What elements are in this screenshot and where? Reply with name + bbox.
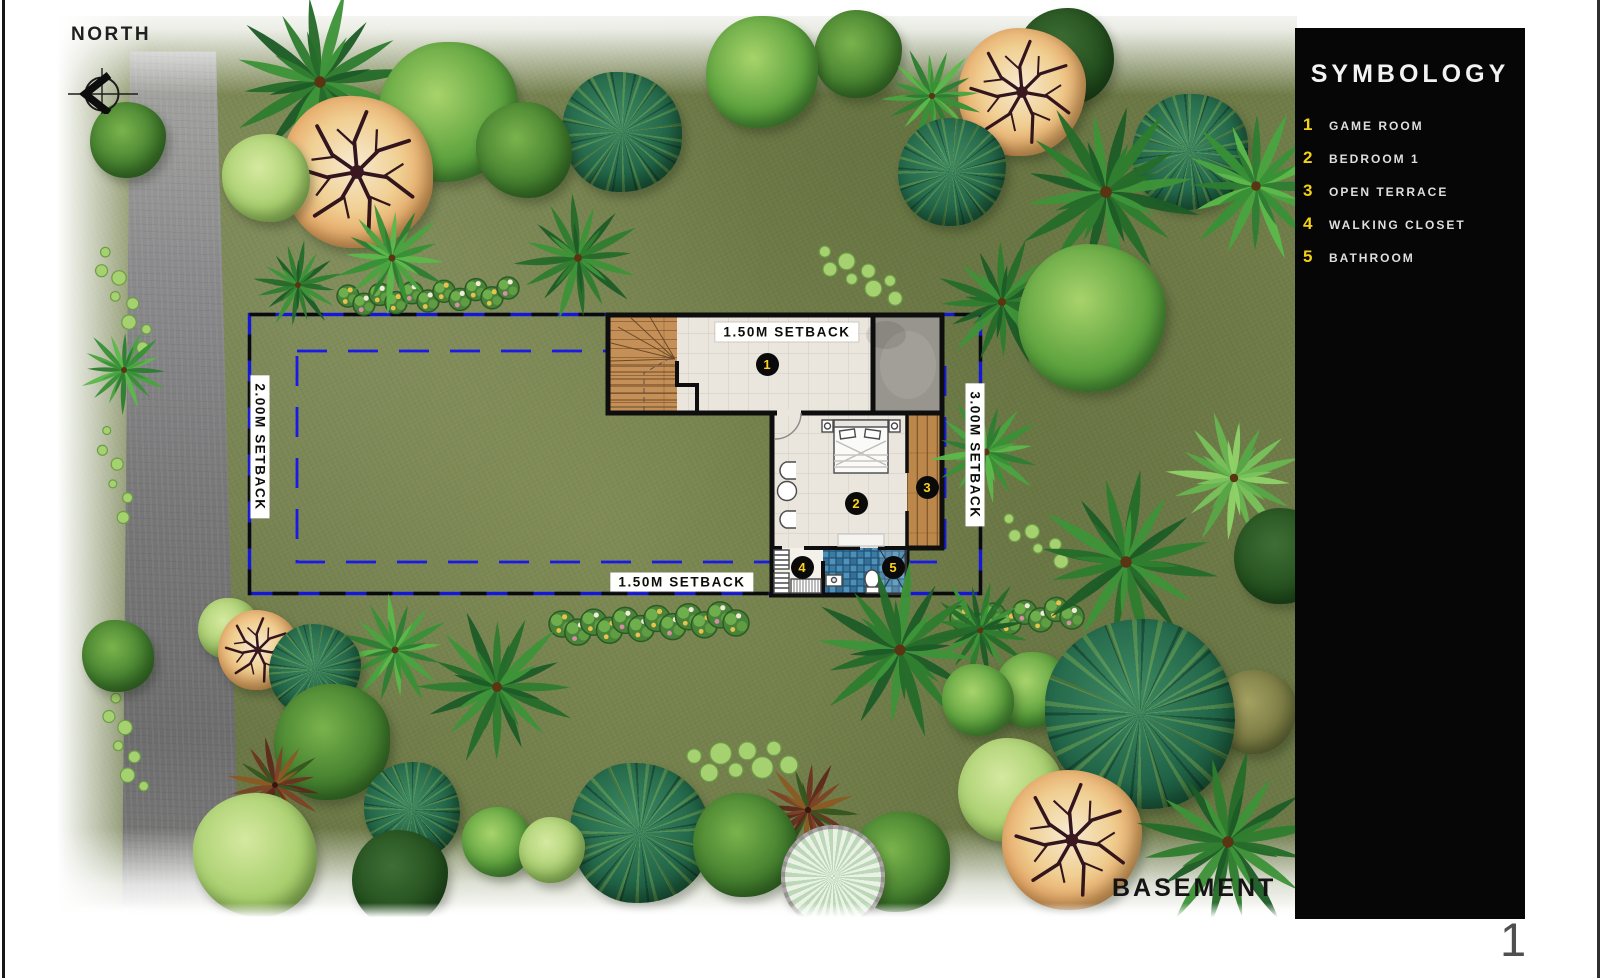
flower-shrub [497, 277, 519, 299]
legend-label: WALKING CLOSET [1329, 218, 1466, 232]
groundcover-dot [738, 742, 756, 760]
groundcover-dot [884, 275, 895, 286]
legend-item: 1GAME ROOM [1303, 115, 1525, 135]
groundcover-dot [846, 273, 857, 284]
groundcover-dot [710, 743, 732, 765]
groundcover-dot [700, 764, 718, 782]
legend-label: GAME ROOM [1329, 119, 1424, 133]
groundcover-dot [103, 710, 115, 722]
groundcover-dot [112, 271, 126, 285]
legend-number: 1 [1303, 115, 1329, 135]
legend-label: BATHROOM [1329, 251, 1415, 265]
groundcover-dot [751, 757, 773, 779]
groundcover-dot [111, 693, 121, 703]
groundcover-dot [110, 292, 120, 302]
legend-item: 4WALKING CLOSET [1303, 214, 1525, 234]
legend-item: 3OPEN TERRACE [1303, 181, 1525, 201]
symbology-panel: SYMBOLOGY 1GAME ROOM2BEDROOM 13OPEN TERR… [1295, 28, 1525, 919]
groundcover-dot [687, 749, 701, 763]
flower-shrub [1060, 605, 1084, 629]
north-label: NORTH [71, 24, 151, 46]
groundcover-dot [838, 253, 855, 270]
groundcover-dot [120, 768, 134, 782]
compass-icon [58, 44, 178, 114]
room-badge-1: 1 [756, 353, 779, 376]
groundcover-dot [111, 458, 123, 470]
legend-label: BEDROOM 1 [1329, 152, 1420, 166]
groundcover-dot [767, 741, 781, 755]
groundcover-dot [888, 291, 902, 305]
room-badge-3: 3 [916, 476, 939, 499]
setback-label-left: 2.00M SETBACK [251, 375, 270, 518]
groundcover-dot [1049, 538, 1061, 550]
setback-label-top: 1.50M SETBACK [715, 323, 858, 342]
groundcover-dot [729, 763, 743, 777]
setback-label-bottom: 1.50M SETBACK [610, 573, 753, 592]
groundcover-dot [97, 445, 107, 455]
legend-number: 4 [1303, 214, 1329, 234]
legend-item: 5BATHROOM [1303, 247, 1525, 267]
groundcover-dot [109, 480, 117, 488]
groundcover-dot [780, 756, 798, 774]
groundcover-dot [1054, 554, 1068, 568]
symbology-title: SYMBOLOGY [1295, 60, 1525, 89]
groundcover-dot [1033, 544, 1043, 554]
groundcover-dot [118, 720, 132, 734]
groundcover-dot [128, 751, 140, 763]
groundcover-dot [96, 265, 108, 277]
shrub-overlay [0, 0, 1300, 925]
room-badge-5: 5 [882, 556, 905, 579]
page-number: 1 [1500, 912, 1526, 967]
groundcover-dot [142, 325, 152, 335]
basement-label: BASEMENT [1112, 874, 1276, 903]
groundcover-dot [1025, 524, 1039, 538]
groundcover-dot [122, 315, 136, 329]
groundcover-dot [865, 280, 882, 297]
groundcover-dot [1009, 530, 1021, 542]
setback-label-right: 3.00M SETBACK [966, 383, 985, 526]
groundcover-dot [819, 246, 830, 257]
legend-number: 3 [1303, 181, 1329, 201]
groundcover-dot [103, 427, 111, 435]
landscape-drawing: 1.50M SETBACK 1.50M SETBACK 2.00M SETBAC… [0, 0, 1300, 925]
groundcover-dot [139, 781, 149, 791]
groundcover-dot [117, 511, 129, 523]
room-badge-2: 2 [845, 492, 868, 515]
room-badge-4: 4 [791, 556, 814, 579]
legend-item: 2BEDROOM 1 [1303, 148, 1525, 168]
groundcover-dot [861, 264, 875, 278]
legend-number: 5 [1303, 247, 1329, 267]
north-indicator: NORTH [58, 22, 178, 112]
legend-list: 1GAME ROOM2BEDROOM 13OPEN TERRACE4WALKIN… [1295, 115, 1525, 267]
groundcover-dot [100, 247, 110, 257]
site-plan-sheet: 1.50M SETBACK 1.50M SETBACK 2.00M SETBAC… [0, 0, 1604, 978]
groundcover-dot [113, 741, 123, 751]
groundcover-dot [123, 493, 133, 503]
groundcover-dot [137, 342, 149, 354]
legend-number: 2 [1303, 148, 1329, 168]
flower-shrub [723, 610, 749, 636]
groundcover-dot [1004, 514, 1014, 524]
groundcover-dot [823, 262, 837, 276]
groundcover-dot [127, 298, 139, 310]
left-edge-line [2, 0, 5, 978]
legend-label: OPEN TERRACE [1329, 185, 1448, 199]
right-edge-line [1597, 0, 1600, 978]
